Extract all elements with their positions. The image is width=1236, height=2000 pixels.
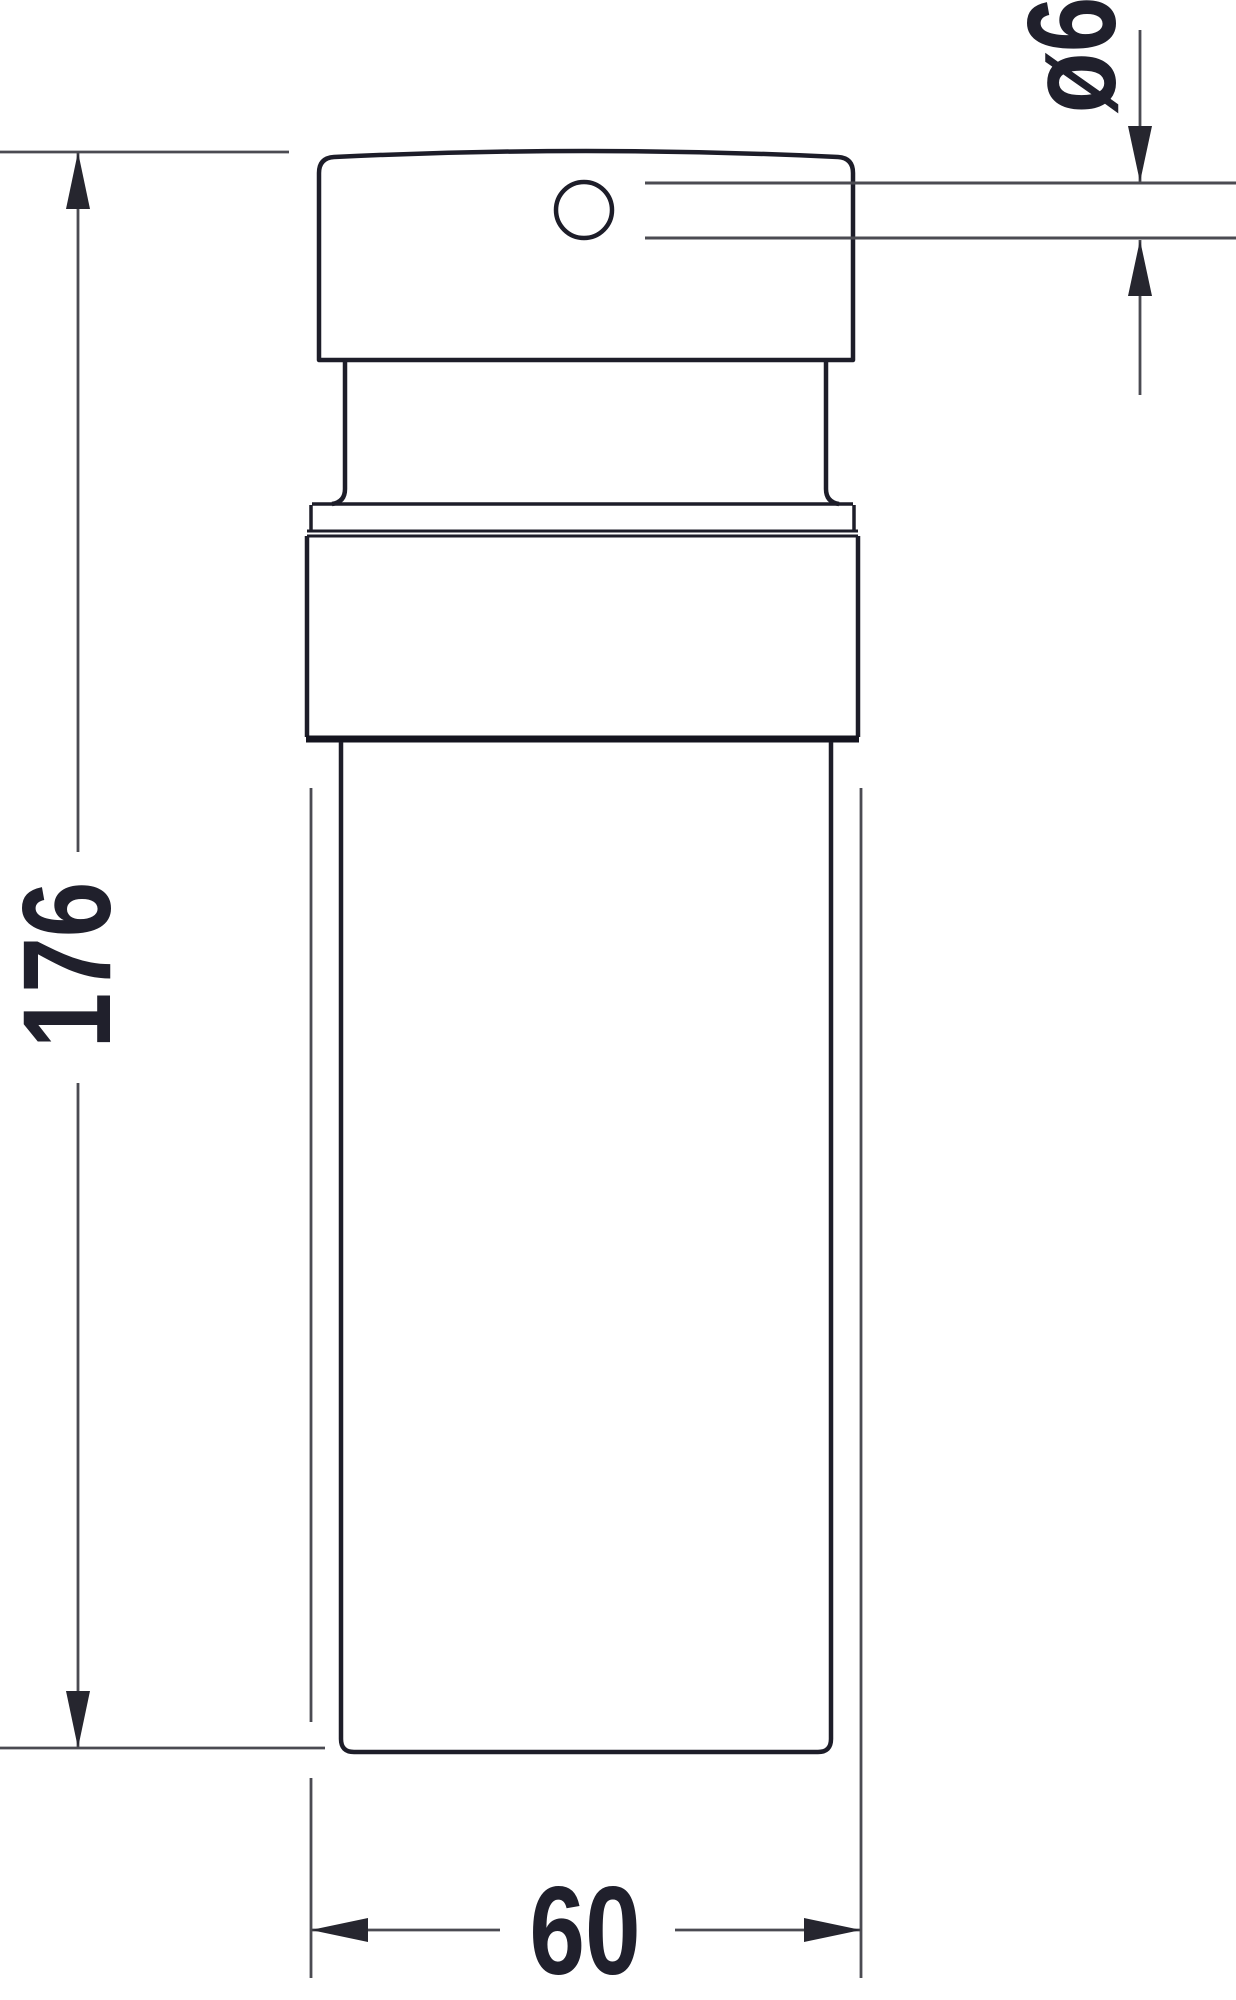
height-arrow-down bbox=[66, 1691, 90, 1748]
neck-left-wall bbox=[332, 360, 345, 504]
nozzle-hole bbox=[556, 182, 612, 238]
technical-drawing-canvas: 176 60 ø6 bbox=[0, 0, 1236, 2000]
width-arrow-right bbox=[804, 1918, 861, 1942]
dimension-spout-diameter: ø6 bbox=[1002, 0, 1152, 395]
height-dimension-label: 176 bbox=[0, 882, 137, 1049]
neck-right-wall bbox=[826, 360, 839, 504]
body-outline bbox=[341, 742, 831, 1752]
dimension-width: 60 bbox=[311, 788, 861, 2000]
width-arrow-left bbox=[311, 1918, 368, 1942]
diameter-arrow-down bbox=[1128, 126, 1152, 182]
width-dimension-label: 60 bbox=[529, 1861, 640, 2000]
height-arrow-up bbox=[66, 152, 90, 209]
spout-tube bbox=[645, 183, 1236, 238]
dispenser-outline bbox=[306, 151, 859, 1752]
diameter-dimension-label: ø6 bbox=[1002, 0, 1141, 113]
dispenser-dimension-drawing: 176 60 ø6 bbox=[0, 0, 1236, 2000]
diameter-arrow-up bbox=[1128, 240, 1152, 296]
dimension-height: 176 bbox=[0, 152, 325, 1748]
